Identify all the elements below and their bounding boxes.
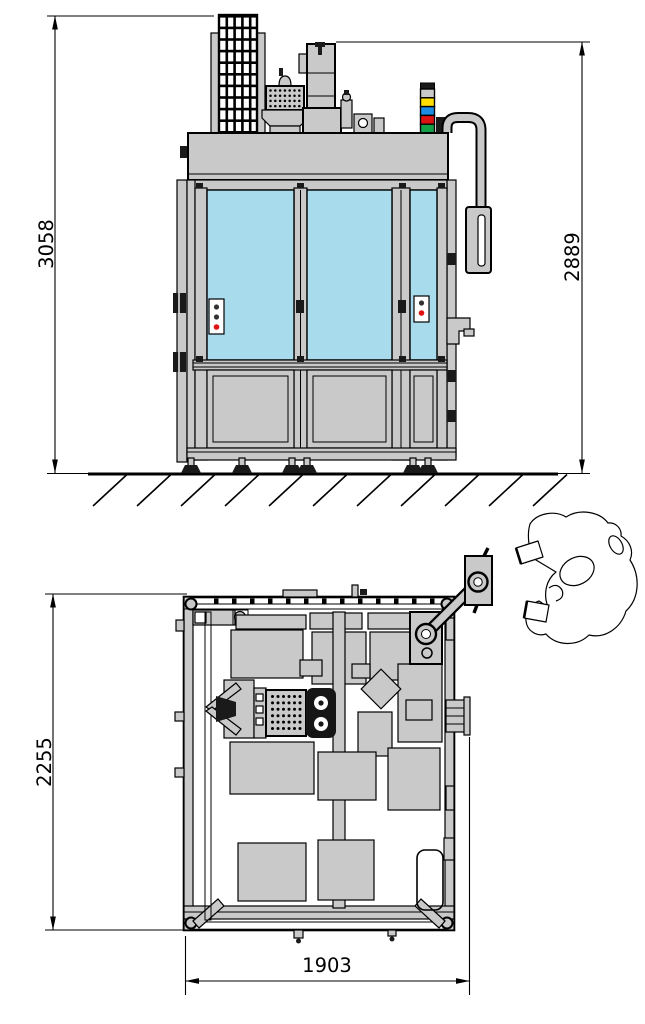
signal-tower [419,83,436,136]
glass-panel-2 [307,190,392,360]
plan-view: 2255 1903 [33,512,637,995]
machine-enclosure [173,133,474,473]
front-view: 3058 2889 [35,15,590,506]
dimension-label-front-enclosure-height: 2889 [561,232,584,282]
glass-panel-3 [410,190,437,360]
lower-panel-1 [207,370,294,448]
dimension-plan-depth: 2255 [33,594,187,930]
lattice-tower [211,15,265,134]
floor-line [88,474,567,506]
dimension-drawing-canvas: 3058 2889 [0,0,645,1024]
pendant-control-plan [465,548,492,613]
roof-instruments [341,90,384,133]
control-panel-right [414,296,429,322]
pendant-control [466,207,491,273]
roller-plate [306,688,336,738]
lower-panel-2 [307,370,392,448]
dimension-label-plan-width: 1903 [302,954,352,977]
control-panel-left [209,299,224,334]
dimension-label-front-overall-height: 3058 [35,219,58,269]
perforated-plate [254,688,306,738]
fan-unit [262,68,308,133]
actuator-column [299,42,341,133]
dimension-label-plan-depth: 2255 [33,737,56,787]
operator-figure [516,512,637,643]
drawing-page: 3058 2889 [0,0,645,1024]
floor-hatching [93,475,567,507]
enclosure-header [188,133,448,180]
side-shaft [446,697,470,735]
